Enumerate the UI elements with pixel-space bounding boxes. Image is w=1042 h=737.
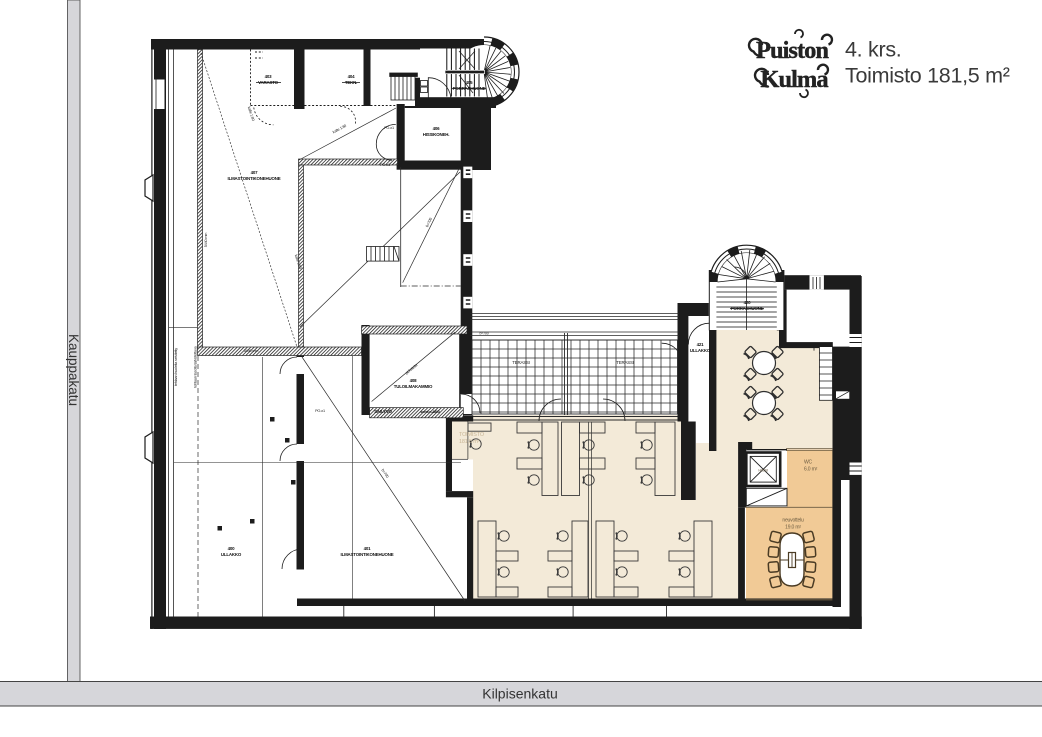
- svg-text:tehtaan tasolta tarkistettava: tehtaan tasolta tarkistettava: [194, 345, 198, 387]
- svg-text:181,5 m²: 181,5 m²: [459, 439, 480, 445]
- svg-text:HISSI: HISSI: [758, 468, 768, 473]
- svg-text:HISSIKONEH.: HISSIKONEH.: [423, 132, 450, 137]
- svg-text:neuvottelu: neuvottelu: [782, 518, 804, 524]
- svg-text:405: 405: [466, 80, 474, 85]
- svg-text:407: 407: [251, 170, 259, 175]
- svg-text:ILMASTOINTIKONEHUONE: ILMASTOINTIKONEHUONE: [228, 176, 281, 181]
- svg-text:4. krs.: 4. krs.: [845, 38, 901, 62]
- svg-text:PO-x1: PO-x1: [380, 163, 390, 167]
- svg-text:406: 406: [433, 126, 441, 131]
- svg-text:TULOILMAKAMMIO: TULOILMAKAMMIO: [394, 384, 433, 389]
- svg-text:tehtaan huolelta selvitetty: tehtaan huolelta selvitetty: [174, 348, 178, 386]
- svg-text:PO-x1: PO-x1: [384, 126, 394, 130]
- svg-text:Kauppakatu: Kauppakatu: [66, 334, 81, 406]
- svg-text:19.0 m²: 19.0 m²: [785, 525, 801, 531]
- svg-text:selvä n-4800: selvä n-4800: [420, 410, 439, 414]
- svg-text:ULLAKKO: ULLAKKO: [690, 348, 711, 353]
- svg-text:404: 404: [348, 74, 356, 79]
- svg-text:5440 mm: 5440 mm: [244, 349, 259, 353]
- svg-text:6.0 m²: 6.0 m²: [804, 467, 818, 473]
- svg-text:Kulma: Kulma: [760, 66, 828, 93]
- svg-text:Toimisto 181,5 m²: Toimisto 181,5 m²: [845, 64, 1010, 88]
- svg-text:408: 408: [410, 378, 418, 383]
- svg-text:400: 400: [228, 546, 236, 551]
- svg-text:Kilpisenkatu: Kilpisenkatu: [482, 686, 558, 702]
- svg-text:ULLAKKO: ULLAKKO: [221, 552, 242, 557]
- svg-text:421: 421: [697, 342, 705, 347]
- svg-text:TERASSI: TERASSI: [512, 360, 530, 365]
- svg-text:401: 401: [364, 546, 372, 551]
- svg-text:b=700: b=700: [480, 332, 489, 336]
- svg-text:420: 420: [744, 300, 752, 305]
- svg-text:PO-x1: PO-x1: [315, 409, 325, 413]
- svg-text:TOIMISTO: TOIMISTO: [459, 432, 485, 438]
- svg-text:TERASSI: TERASSI: [616, 360, 634, 365]
- svg-text:Puiston: Puiston: [756, 37, 829, 64]
- svg-text:5440 mm: 5440 mm: [204, 233, 208, 248]
- svg-text:SÄILYVÖ: SÄILYVÖ: [374, 409, 392, 414]
- svg-text:403: 403: [265, 74, 273, 79]
- svg-text:ILMASTOINTIKONEHUONE: ILMASTOINTIKONEHUONE: [341, 552, 394, 557]
- svg-text:WC: WC: [804, 460, 813, 466]
